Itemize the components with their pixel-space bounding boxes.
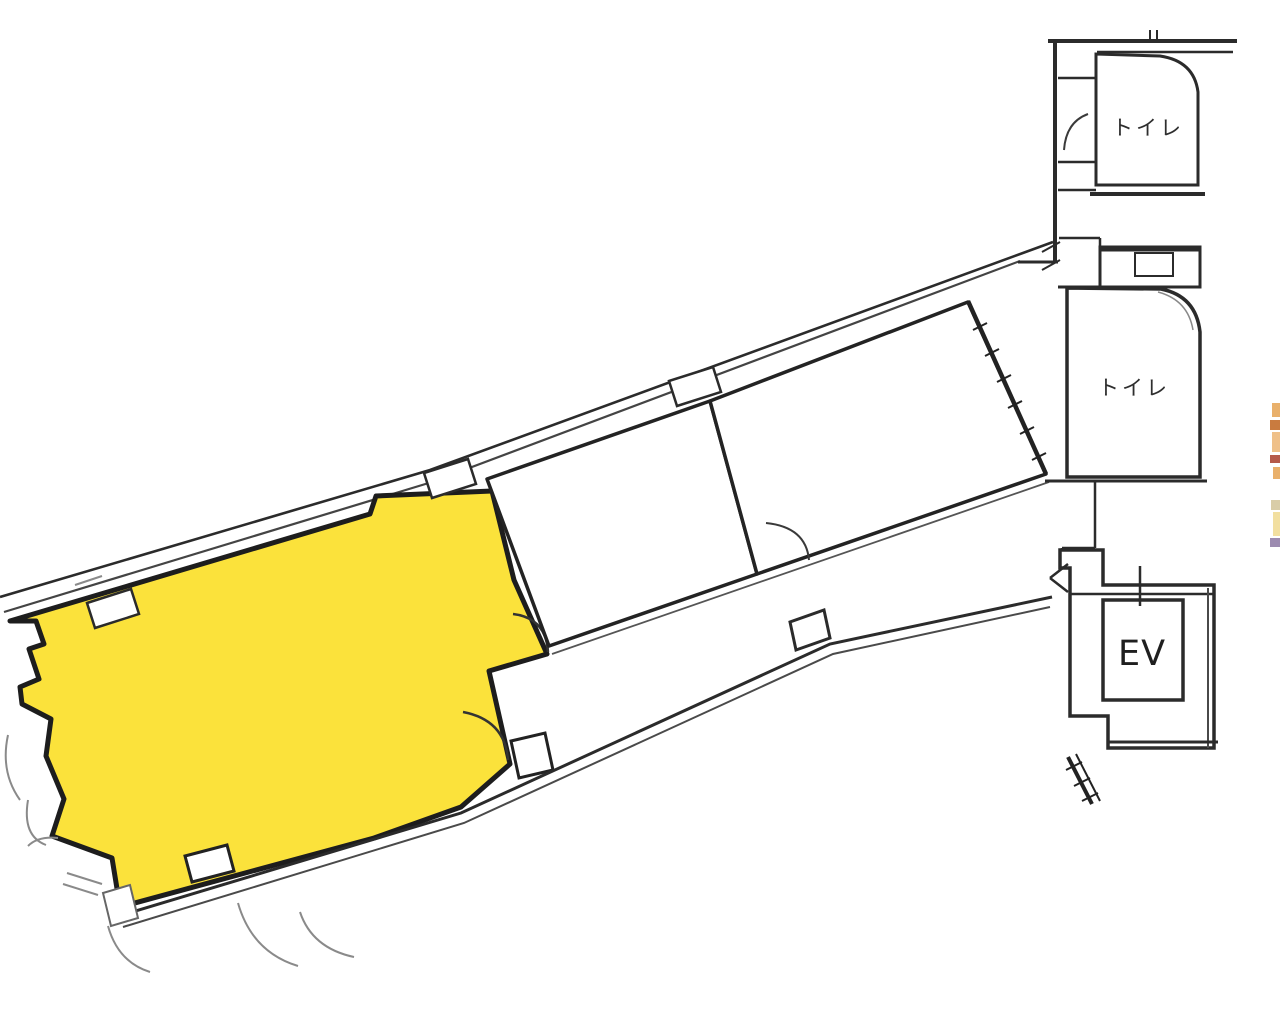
entrance-door-leaf xyxy=(511,733,553,778)
highlighted-unit-outline xyxy=(10,491,547,907)
floor-plan-drawing: トイレ トイレ EV xyxy=(0,0,1280,1012)
elevator-label: EV xyxy=(1118,634,1166,674)
elevator-area: EV xyxy=(1050,550,1218,804)
floor-plan-page: トイレ トイレ EV xyxy=(0,0,1280,1012)
toilet-lower-room: トイレ xyxy=(1067,288,1200,477)
stair-stub xyxy=(1066,754,1100,804)
corridor-pillar xyxy=(790,610,830,650)
toilet-lower-label: トイレ xyxy=(1098,376,1170,400)
washstand-area xyxy=(1042,194,1205,287)
clipped-edge-annotation xyxy=(1270,403,1280,547)
room-b xyxy=(710,302,1046,574)
toilet-upper-label: トイレ xyxy=(1112,116,1184,140)
toilet-upper-ante-door-arc xyxy=(1064,114,1088,150)
washstand-sink xyxy=(1135,253,1173,276)
toilet-upper-room: トイレ xyxy=(1058,54,1198,190)
